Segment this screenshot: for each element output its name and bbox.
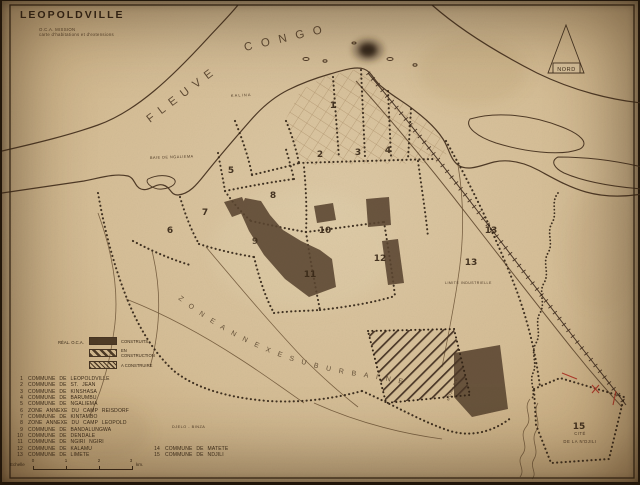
scale-tick-1: 1 [65, 458, 68, 463]
map-subtitle: O.C.A. MISSION carte d'habitations et d'… [39, 27, 114, 37]
scale-tick-2: 2 [98, 458, 101, 463]
legend-row-to-build: A CONSTRUIRE [89, 361, 155, 369]
construction-legend-header: RÉAL. O.C.A. [58, 340, 88, 345]
communes-index: 1COMMUNE DE LEOPOLDVILLE 2COMMUNE DE ST.… [14, 376, 129, 458]
commune-row: 15COMMUNE DE NDJILI [151, 452, 228, 458]
scale-tick-3: 3 [130, 458, 133, 463]
map-photo: NORD FLEUVE CONGO KALINA BAIE DE NGALIEM… [0, 0, 640, 485]
scale-bar-line [33, 466, 133, 470]
scale-bar: Echelle 0 1 2 3 km. [10, 457, 160, 475]
scale-tick-0: 0 [32, 458, 35, 463]
scale-label: Echelle [10, 462, 25, 467]
built-swatch [89, 337, 117, 345]
legend-row-under-construction: EN CONSTRUCTION [89, 348, 155, 358]
communes-index-column-2: 14COMMUNE DE MATETE 15COMMUNE DE NDJILI [151, 446, 228, 459]
map-subtitle-line2: carte d'habitations et d'extensions [39, 32, 114, 37]
to-build-swatch-label: A CONSTRUIRE [121, 363, 152, 368]
scale-bar-tick [66, 466, 67, 469]
map-title: LEOPOLDVILLE [20, 9, 125, 21]
map-sheet: NORD FLEUVE CONGO KALINA BAIE DE NGALIEM… [2, 1, 638, 482]
scale-unit: km. [136, 462, 143, 467]
built-swatch-label: CONSTRUITS [121, 339, 148, 344]
to-build-swatch [89, 361, 117, 369]
under-construction-swatch-label: EN CONSTRUCTION [121, 348, 155, 358]
under-construction-swatch [89, 349, 117, 357]
construction-legend-rows: CONSTRUITS EN CONSTRUCTION A CONSTRUIRE [89, 337, 155, 373]
scale-bar-tick [99, 466, 100, 469]
legend-row-built: CONSTRUITS [89, 337, 155, 345]
commune-label: COMMUNE DE NDJILI [165, 452, 224, 458]
